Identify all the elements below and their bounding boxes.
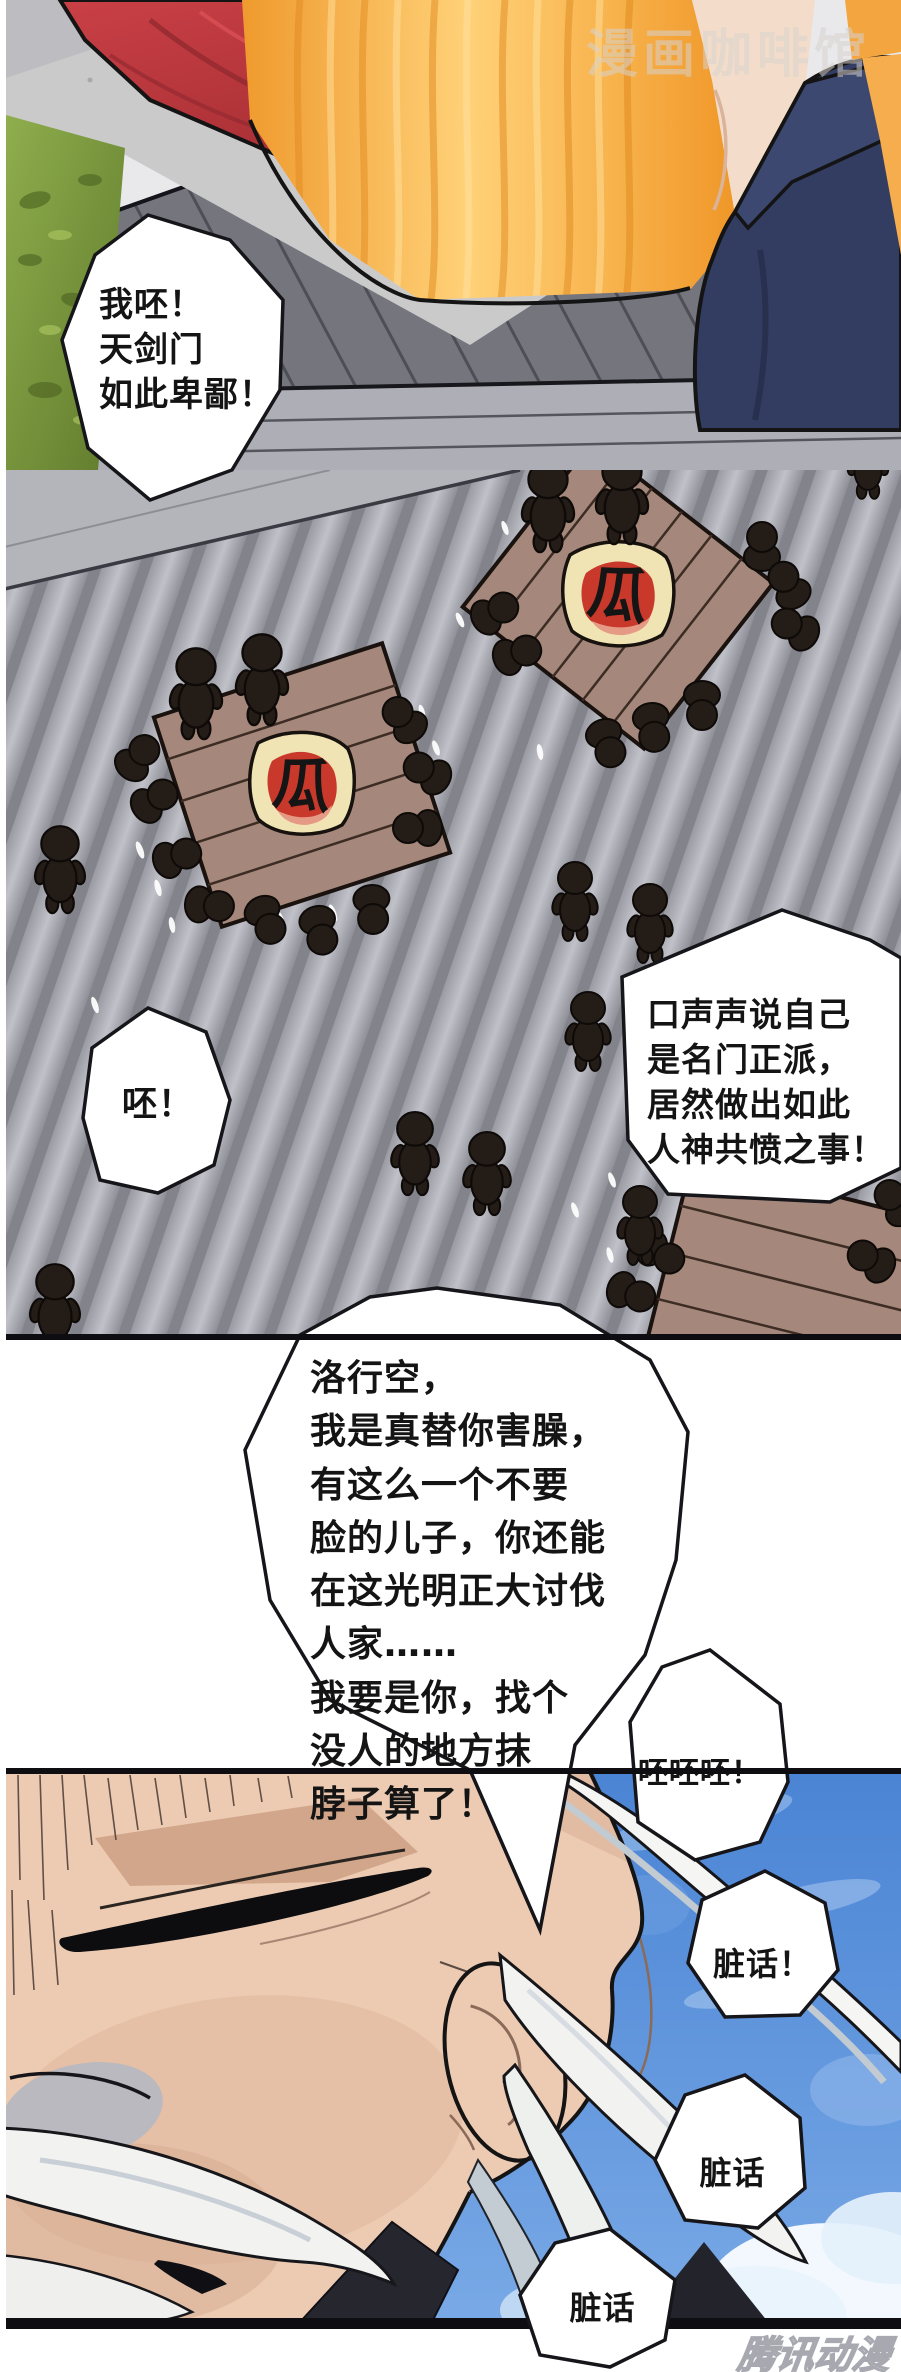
bubble-text: 脏话！	[680, 1943, 845, 1985]
bubble-text: 脏话	[515, 2287, 690, 2329]
bubble-text: 脏话	[650, 2152, 815, 2194]
page-left-margin	[0, 0, 6, 2372]
melon-emblem-char: 瓜	[270, 748, 335, 822]
speech-bubble-accuse: 口声声说自己 是名门正派， 居然做出如此 人神共愤之事！	[618, 905, 901, 1205]
melon-emblem-char: 瓜	[583, 556, 652, 634]
speech-bubble-shout: 我呸！ 天剑门 如此卑鄙！	[55, 205, 295, 510]
watermark-tencent-comics: 腾讯动漫	[735, 2324, 895, 2372]
watermark-manga-cafe: 漫画咖啡馆	[586, 12, 871, 87]
bubble-text: 洛行空， 我是真替你害臊， 有这么一个不要 脸的儿子，你还能 在这光明正大讨伐 …	[310, 1352, 606, 1831]
comic-page: 瓜	[0, 0, 901, 2372]
speech-bubble-pei: 呸！	[78, 1000, 238, 1200]
panel-border	[0, 1768, 901, 1774]
bubble-text: 呸！	[78, 1082, 238, 1128]
bubble-text: 我呸！ 天剑门 如此卑鄙！	[99, 283, 274, 418]
bubble-text: 口声声说自己 是名门正派， 居然做出如此 人神共愤之事！	[647, 993, 885, 1173]
speech-bubble-dirty3: 脏话	[515, 2225, 690, 2372]
speech-bubble-pei3: 呸呸呸！	[600, 1642, 800, 1867]
speech-bubble-dirty1: 脏话！	[680, 1865, 845, 2025]
panel-border	[0, 1334, 901, 1340]
speech-bubble-dirty2: 脏话	[650, 2070, 815, 2235]
